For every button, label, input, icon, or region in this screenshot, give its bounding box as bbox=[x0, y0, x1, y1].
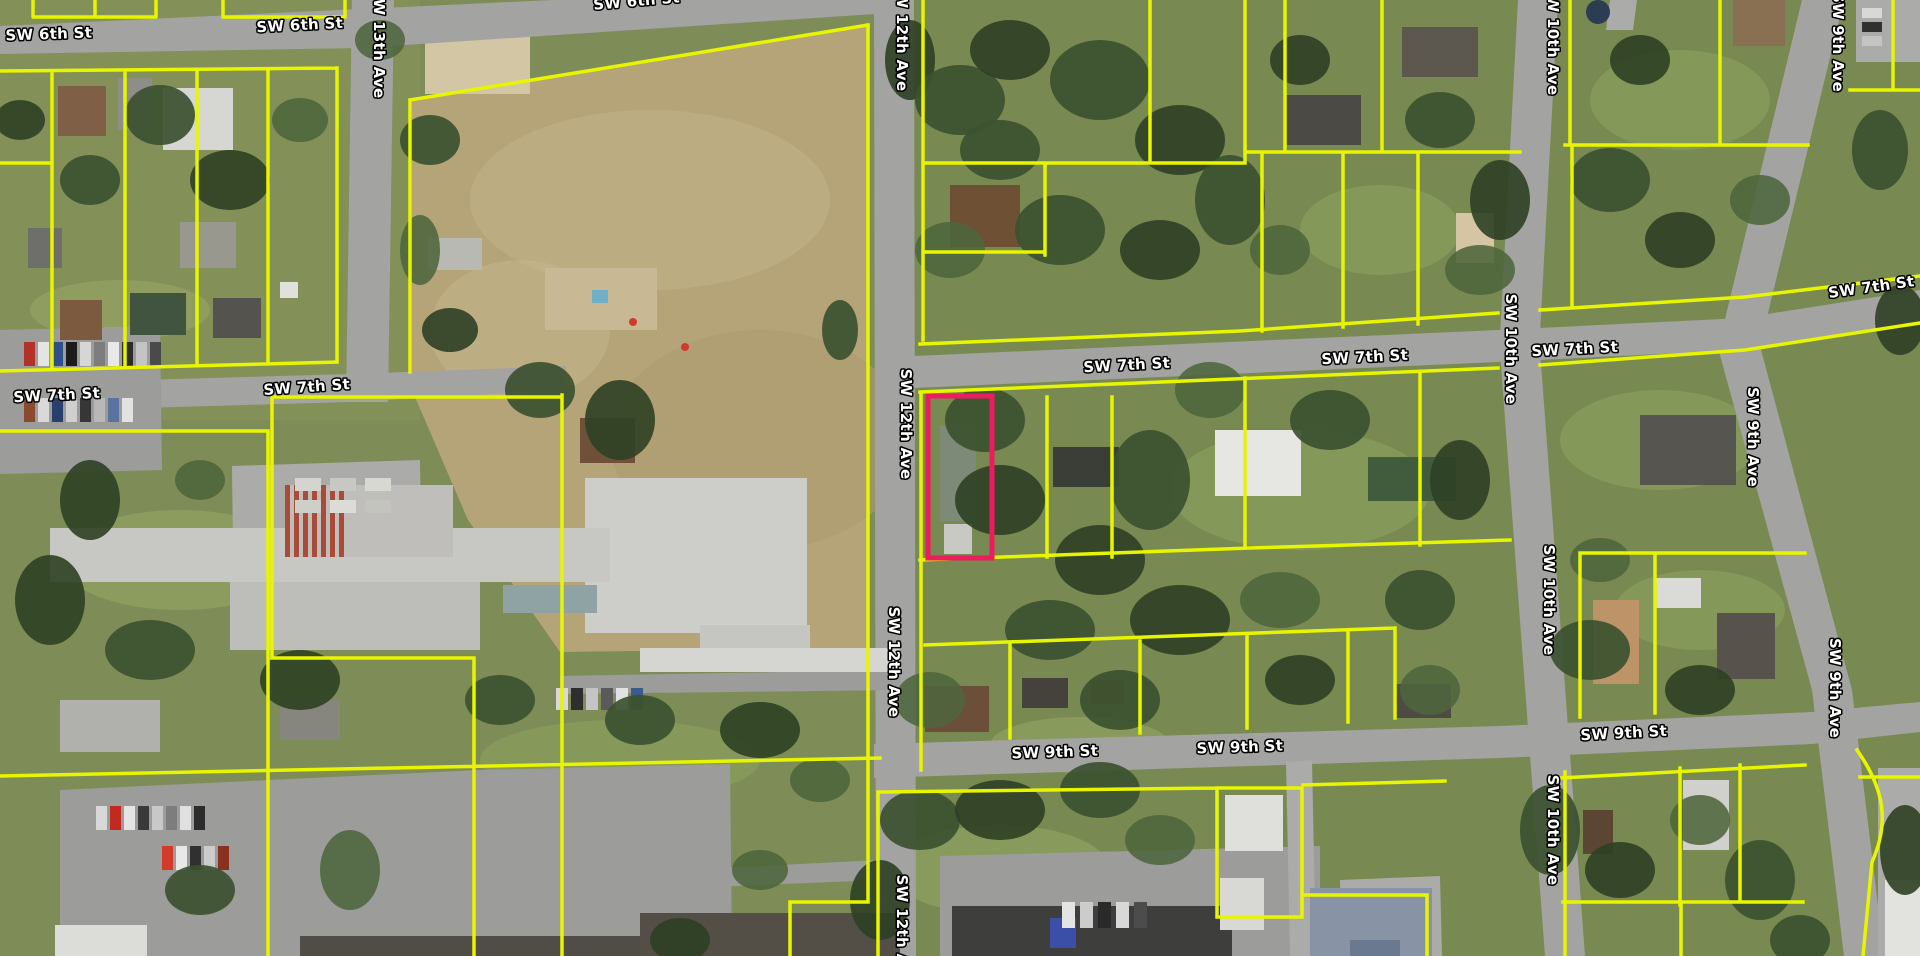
street-label: SW 10th Ave bbox=[1540, 545, 1558, 656]
street-label: SW 9th Ave bbox=[1829, 0, 1847, 92]
street-label: SW 6th St bbox=[5, 23, 92, 44]
street-label: SW 12th Ave bbox=[885, 607, 903, 718]
street-label: SW 12th Ave bbox=[897, 369, 915, 480]
street-label: SW 10th Ave bbox=[1544, 0, 1562, 95]
street-label: SW 10th Ave bbox=[1502, 294, 1520, 405]
map-viewport[interactable]: SW 6th StSW 6th StSW 6th StSW 13th AveSW… bbox=[0, 0, 1920, 956]
street-label: SW 12th Ave bbox=[893, 0, 911, 91]
street-label: SW 9th St bbox=[1011, 741, 1098, 762]
street-label: SW 10th Ave bbox=[1544, 775, 1562, 886]
street-label: SW 13th Ave bbox=[370, 0, 388, 98]
street-label: SW 9th St bbox=[1196, 736, 1283, 757]
street-label: SW 9th Ave bbox=[1744, 387, 1762, 487]
street-label: SW 12th Ave bbox=[893, 875, 911, 956]
aerial-map-canvas[interactable]: SW 6th StSW 6th StSW 6th StSW 13th AveSW… bbox=[0, 0, 1920, 956]
street-label: SW 9th Ave bbox=[1826, 638, 1844, 738]
